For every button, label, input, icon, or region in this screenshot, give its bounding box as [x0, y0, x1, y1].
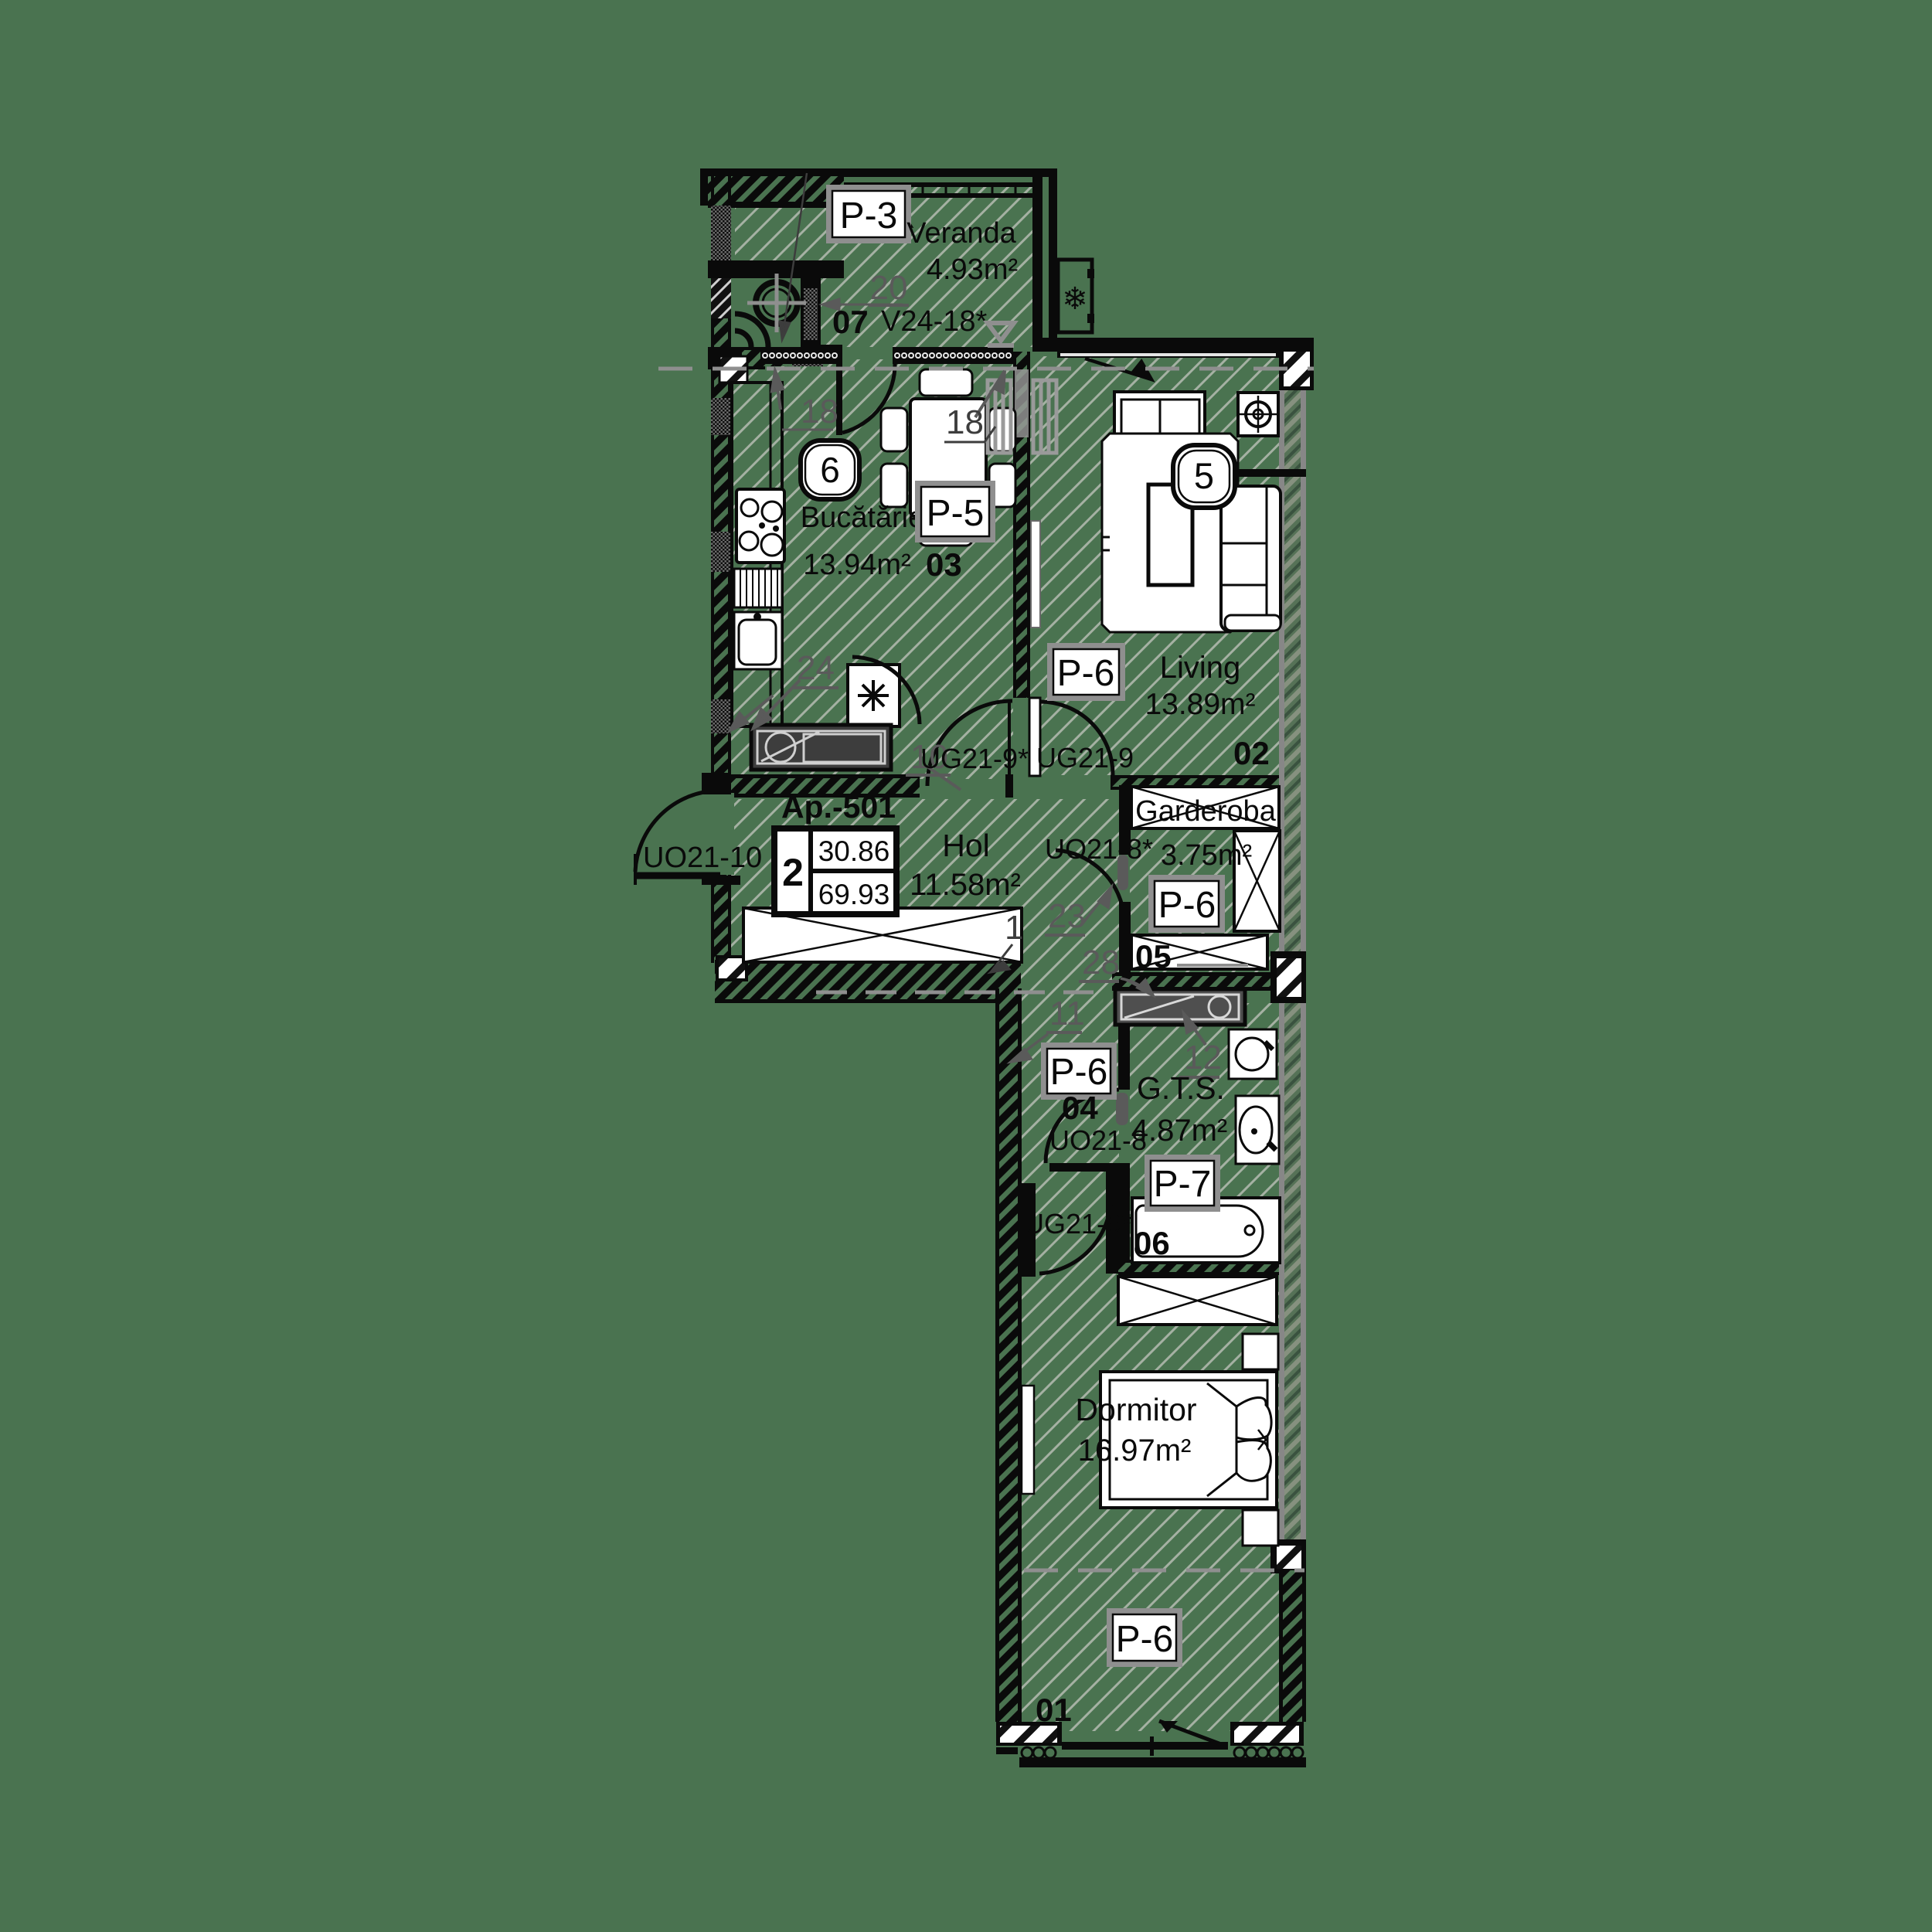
svg-text:28: 28 [1082, 944, 1120, 981]
svg-text:P-6: P-6 [1057, 653, 1115, 694]
svg-text:03: 03 [926, 546, 962, 583]
svg-text:18: 18 [801, 393, 838, 430]
svg-text:06: 06 [1134, 1225, 1170, 1261]
svg-text:P-3: P-3 [840, 196, 898, 236]
svg-text:11.58m²: 11.58m² [910, 868, 1021, 902]
svg-text:Living: Living [1160, 651, 1241, 685]
svg-text:V24-18*: V24-18* [881, 305, 988, 338]
svg-text:P-6: P-6 [1116, 1619, 1174, 1660]
svg-text:UO21-8*: UO21-8* [1045, 833, 1153, 865]
svg-text:P-6: P-6 [1158, 885, 1216, 926]
svg-text:Hol: Hol [942, 828, 990, 863]
svg-text:Bucătărie: Bucătărie [801, 502, 925, 534]
svg-text:5: 5 [1194, 455, 1214, 496]
svg-text:11: 11 [1049, 995, 1085, 1032]
svg-text:UG21-9*: UG21-9* [920, 743, 1029, 774]
svg-text:UG21-9: UG21-9 [1036, 742, 1134, 774]
svg-text:18: 18 [946, 403, 984, 441]
svg-text:16.97m²: 16.97m² [1078, 1434, 1192, 1468]
svg-text:UG21-9*: UG21-9* [1024, 1208, 1132, 1240]
svg-text:23: 23 [1048, 897, 1086, 935]
svg-text:02: 02 [1233, 735, 1270, 771]
svg-text:13.94m²: 13.94m² [803, 549, 910, 581]
svg-text:01: 01 [1036, 1692, 1072, 1728]
svg-text:Ap.-501: Ap.-501 [781, 789, 896, 825]
svg-text:3.75m²: 3.75m² [1161, 839, 1252, 872]
svg-text:UO21-8: UO21-8 [1049, 1124, 1147, 1156]
svg-text:4.93m²: 4.93m² [927, 253, 1018, 286]
svg-text:20: 20 [870, 269, 908, 307]
svg-text:Dormitor: Dormitor [1075, 1392, 1196, 1427]
svg-text:2: 2 [782, 851, 804, 894]
svg-text:Veranda: Veranda [906, 217, 1016, 250]
svg-text:1: 1 [1005, 909, 1023, 947]
svg-text:P-7: P-7 [1154, 1164, 1212, 1205]
svg-text:05: 05 [1135, 938, 1172, 975]
svg-text:6: 6 [820, 450, 840, 490]
svg-text:P-5: P-5 [927, 493, 985, 534]
svg-text:P-6: P-6 [1050, 1052, 1108, 1093]
svg-text:24: 24 [797, 649, 835, 687]
svg-text:❄: ❄ [1062, 282, 1088, 316]
svg-text:07: 07 [832, 304, 869, 340]
svg-text:30.86: 30.86 [818, 835, 890, 867]
svg-text:69.93: 69.93 [818, 879, 890, 910]
svg-text:13.89m²: 13.89m² [1145, 688, 1255, 721]
svg-text:04: 04 [1062, 1090, 1098, 1126]
svg-text:Garderoba: Garderoba [1135, 795, 1277, 828]
svg-text:UO21-10: UO21-10 [643, 842, 762, 874]
svg-text:G.T.S.: G.T.S. [1137, 1070, 1225, 1106]
